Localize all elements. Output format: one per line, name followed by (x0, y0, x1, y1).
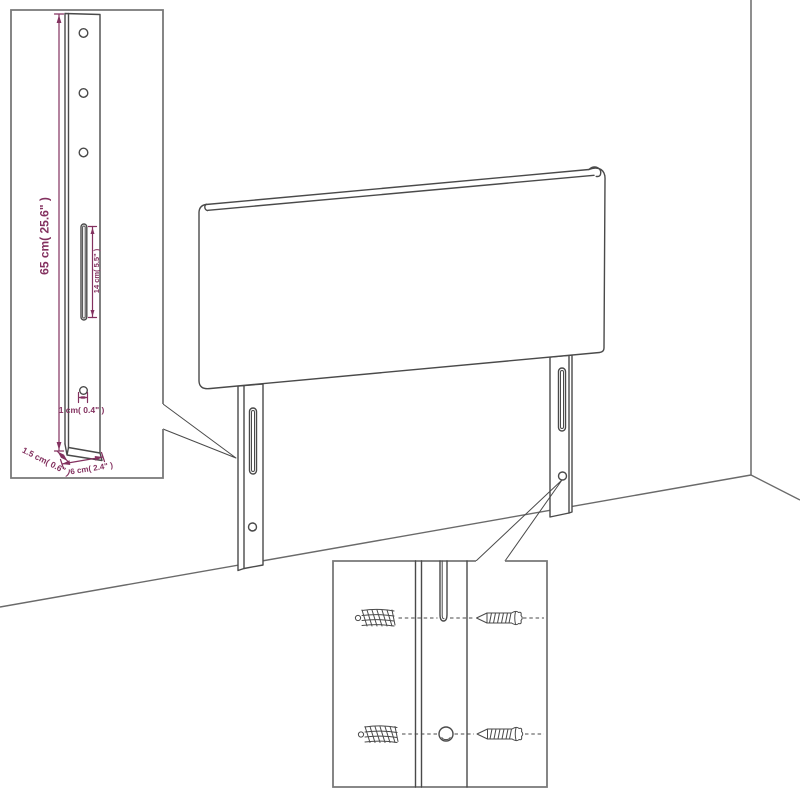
dim-label-slot-length: 14 cm( 5.5" ) (92, 248, 101, 293)
headboard-left-leg (238, 384, 263, 571)
leg-detail-callout (163, 404, 236, 458)
hardware-detail-inset (333, 561, 547, 787)
panel-outline (199, 168, 605, 389)
left-leg-body (238, 384, 263, 571)
diagram-svg: 65 cm( 25.6" ) 14 cm( 5.5" ) 1 cm( 0.4" … (0, 0, 800, 800)
headboard-panel (199, 167, 605, 389)
floor-line-right (751, 475, 800, 500)
dim-label-hole-diameter: 1 cm( 0.4" ) (59, 405, 105, 415)
leg-detail-inset: 65 cm( 25.6" ) 14 cm( 5.5" ) 1 cm( 0.4" … (11, 10, 163, 478)
dim-label-leg-height: 65 cm( 25.6" ) (38, 197, 52, 275)
product-dimension-diagram: 65 cm( 25.6" ) 14 cm( 5.5" ) 1 cm( 0.4" … (0, 0, 800, 800)
